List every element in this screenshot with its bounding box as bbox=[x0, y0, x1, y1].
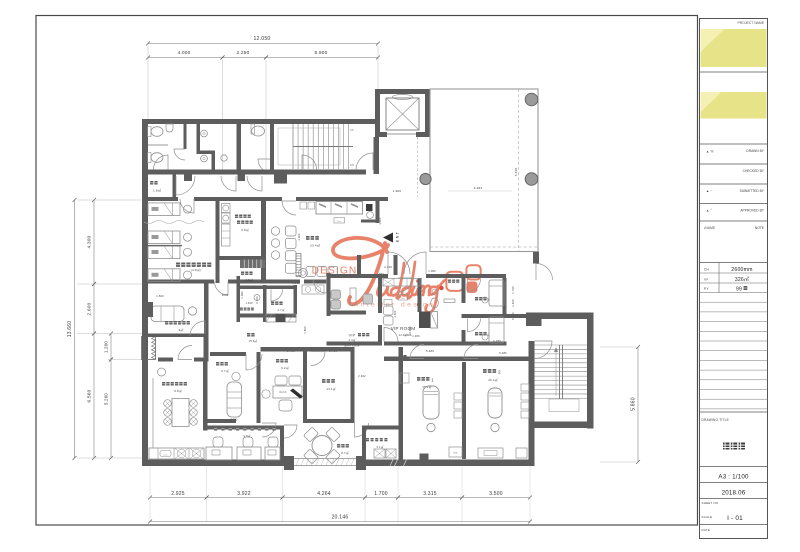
svg-text:5.260: 5.260 bbox=[104, 393, 109, 405]
svg-text:sink: sink bbox=[163, 455, 167, 457]
svg-text:1.180: 1.180 bbox=[298, 233, 301, 241]
svg-text:6.8㎡: 6.8㎡ bbox=[241, 228, 249, 232]
svg-text:15.6㎡: 15.6㎡ bbox=[249, 339, 258, 343]
svg-text:326㎡: 326㎡ bbox=[735, 276, 749, 283]
svg-text:3.315: 3.315 bbox=[423, 491, 437, 497]
svg-text:▲ °: ▲ ° bbox=[706, 209, 712, 213]
svg-text:2.925: 2.925 bbox=[171, 491, 185, 497]
svg-text:1.200: 1.200 bbox=[104, 341, 109, 353]
svg-text:PY: PY bbox=[704, 287, 709, 291]
svg-text:12.4㎡: 12.4㎡ bbox=[399, 333, 408, 337]
svg-text:▪NAME: ▪NAME bbox=[704, 226, 715, 230]
svg-text:PROJECT NAME: PROJECT NAME bbox=[737, 21, 764, 25]
svg-text:Tea: Tea bbox=[400, 298, 405, 300]
svg-text:E.N.T: E.N.T bbox=[396, 231, 400, 242]
svg-text:6.468: 6.468 bbox=[514, 168, 518, 177]
svg-text:1.080: 1.080 bbox=[240, 291, 244, 299]
svg-text:DN: DN bbox=[350, 163, 354, 167]
svg-text:4.000: 4.000 bbox=[177, 50, 190, 56]
svg-text:2.700: 2.700 bbox=[231, 419, 238, 422]
svg-text:DRAWN BY: DRAWN BY bbox=[746, 149, 764, 153]
svg-text:1.800: 1.800 bbox=[303, 326, 307, 334]
svg-text:3.500: 3.500 bbox=[489, 491, 503, 497]
svg-text:SCALE: SCALE bbox=[702, 515, 713, 519]
svg-text:23.4㎡: 23.4㎡ bbox=[310, 243, 320, 248]
svg-text:4.7㎡: 4.7㎡ bbox=[278, 308, 285, 312]
svg-text:(4.8㎡): (4.8㎡) bbox=[191, 268, 201, 272]
svg-text:▲ ~: ▲ ~ bbox=[706, 189, 713, 193]
svg-text:5.900: 5.900 bbox=[314, 50, 327, 56]
svg-text:9㎡: 9㎡ bbox=[179, 328, 184, 332]
svg-text:4.5㎡: 4.5㎡ bbox=[245, 278, 253, 282]
svg-text:1.400: 1.400 bbox=[511, 299, 515, 307]
svg-text:Tea: Tea bbox=[337, 221, 342, 223]
svg-text:99: 99 bbox=[736, 287, 742, 293]
svg-text:2.250: 2.250 bbox=[236, 50, 249, 56]
svg-text:NOTE: NOTE bbox=[755, 226, 765, 230]
svg-text:4.300: 4.300 bbox=[87, 235, 93, 248]
svg-text:A3 : 1/100: A3 : 1/100 bbox=[718, 474, 749, 481]
svg-text:4.264: 4.264 bbox=[317, 491, 331, 497]
svg-text:2600mm: 2600mm bbox=[731, 267, 752, 273]
svg-text:14.1㎡: 14.1㎡ bbox=[326, 387, 335, 391]
svg-text:1.8㎡: 1.8㎡ bbox=[153, 188, 161, 193]
svg-text:5000: 5000 bbox=[222, 293, 229, 297]
svg-text:CH: CH bbox=[704, 268, 710, 272]
svg-text:5.486: 5.486 bbox=[499, 351, 507, 355]
svg-text:1.700: 1.700 bbox=[374, 491, 388, 497]
svg-text:20.4㎡: 20.4㎡ bbox=[488, 378, 497, 382]
svg-text:3.922: 3.922 bbox=[237, 491, 251, 497]
svg-text:DRAWING TITLE: DRAWING TITLE bbox=[702, 418, 729, 422]
svg-text:m²: m² bbox=[704, 278, 708, 282]
svg-text:SHEET NO: SHEET NO bbox=[702, 501, 719, 505]
svg-text:3.1㎡: 3.1㎡ bbox=[377, 445, 384, 449]
svg-text:6.7㎡: 6.7㎡ bbox=[221, 369, 229, 373]
svg-text:DESK: DESK bbox=[279, 391, 287, 394]
svg-text:12.050: 12.050 bbox=[253, 36, 270, 42]
svg-text:1.900: 1.900 bbox=[393, 189, 402, 193]
svg-text:APPROVED BY: APPROVED BY bbox=[740, 209, 764, 213]
svg-text:I - 01: I - 01 bbox=[727, 515, 743, 522]
svg-text:UP: UP bbox=[350, 128, 354, 132]
svg-text:9.8㎡: 9.8㎡ bbox=[174, 389, 182, 393]
svg-text:1.080: 1.080 bbox=[428, 269, 436, 273]
svg-text:2018.06: 2018.06 bbox=[722, 490, 746, 497]
svg-text:2.600: 2.600 bbox=[87, 302, 93, 315]
svg-text:2.942: 2.942 bbox=[358, 374, 366, 378]
svg-text:SUBMITTED BY: SUBMITTED BY bbox=[740, 189, 765, 193]
svg-text:SLIDING: SLIDING bbox=[218, 269, 220, 279]
svg-text:1.790: 1.790 bbox=[511, 286, 515, 294]
svg-text:1.306: 1.306 bbox=[412, 334, 420, 338]
svg-text:13.660: 13.660 bbox=[67, 321, 73, 338]
svg-text:20.146: 20.146 bbox=[331, 515, 348, 521]
svg-text:4.4㎡: 4.4㎡ bbox=[349, 338, 356, 342]
svg-text:1.340: 1.340 bbox=[246, 302, 253, 305]
svg-text:VIP ROOM: VIP ROOM bbox=[391, 326, 416, 331]
svg-text:4EA: 4EA bbox=[453, 452, 458, 455]
svg-text:DATE: DATE bbox=[702, 528, 711, 532]
svg-text:1.500: 1.500 bbox=[394, 310, 397, 318]
svg-text:9.2㎡: 9.2㎡ bbox=[281, 366, 289, 370]
svg-text:5.860: 5.860 bbox=[631, 397, 637, 411]
svg-text:1.500: 1.500 bbox=[156, 294, 164, 298]
svg-text:6.560: 6.560 bbox=[87, 389, 93, 402]
svg-text:8.7㎡: 8.7㎡ bbox=[341, 451, 349, 455]
svg-text:▲ %: ▲ % bbox=[706, 150, 713, 154]
svg-text:5.486: 5.486 bbox=[426, 349, 434, 353]
svg-text:VIP: VIP bbox=[349, 334, 356, 338]
svg-text:CHECKED BY: CHECKED BY bbox=[743, 169, 765, 173]
svg-text:2: 2 bbox=[498, 370, 501, 375]
svg-text:6.264: 6.264 bbox=[474, 186, 483, 190]
